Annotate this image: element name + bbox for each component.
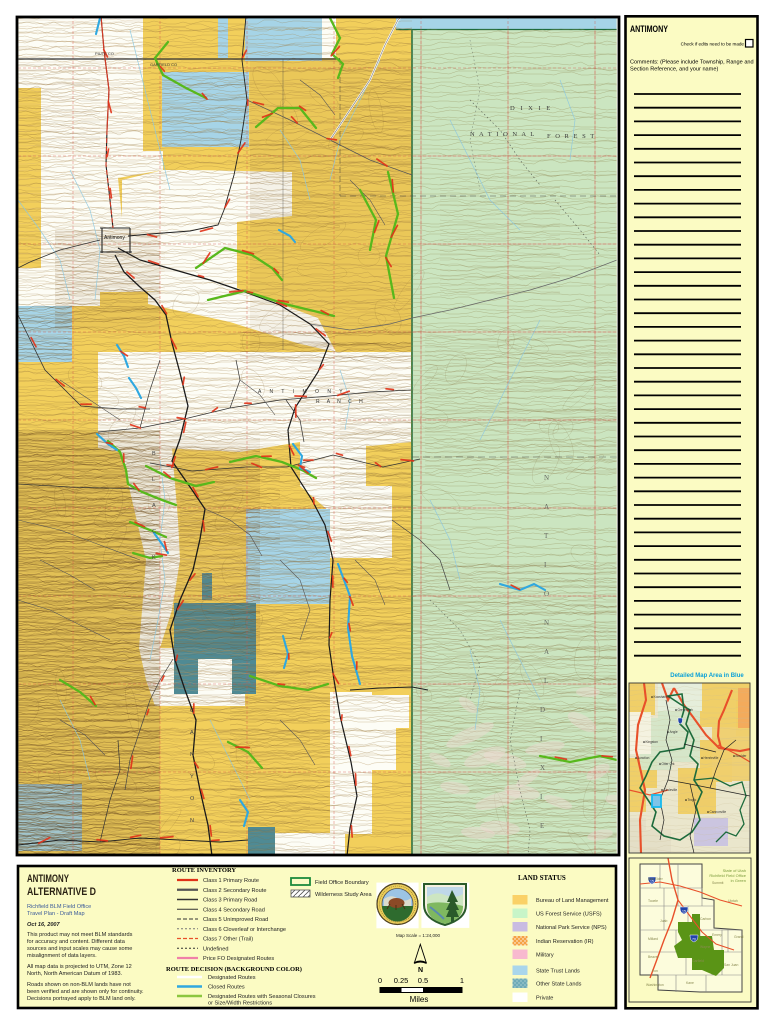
svg-text:Private: Private [536,996,553,1002]
svg-text:A N T I M O N Y: A N T I M O N Y [258,389,346,395]
svg-text:0.25: 0.25 [394,976,409,985]
svg-text:sources and input scales may c: sources and input scales may cause some [27,946,132,952]
svg-text:GARFIELD CO: GARFIELD CO [150,62,177,67]
svg-text:Cannonville: Cannonville [710,810,727,814]
svg-text:C: C [190,708,194,714]
svg-text:Designated Routes: Designated Routes [208,975,256,981]
svg-text:Section Reference, and your na: Section Reference, and your name) [630,67,718,73]
svg-text:N: N [190,752,194,758]
svg-text:Wayne: Wayne [700,945,711,949]
svg-text:C: C [152,529,156,535]
svg-text:15: 15 [682,910,686,914]
svg-text:Henrieville: Henrieville [704,756,719,760]
svg-text:Beaver: Beaver [648,955,660,959]
svg-text:San Juan: San Juan [724,963,738,967]
svg-text:Class 1 Primary Route: Class 1 Primary Route [203,878,259,884]
svg-text:Check if edits need to be made: Check if edits need to be made [681,42,745,47]
svg-text:Kane: Kane [686,981,694,985]
svg-text:A: A [544,503,549,511]
svg-text:Junction: Junction [638,756,650,760]
svg-text:ROUTE DECISION (BACKGROUND COL: ROUTE DECISION (BACKGROUND COLOR) [166,966,302,973]
svg-text:Wilderness Study Area: Wilderness Study Area [315,892,372,898]
svg-text:0.5: 0.5 [418,976,428,985]
svg-text:Travel Plan - Draft Map: Travel Plan - Draft Map [27,911,85,917]
svg-text:Bureau of Land Management: Bureau of Land Management [536,898,609,904]
svg-text:Greenwich: Greenwich [678,708,693,712]
svg-text:ANTIMONY: ANTIMONY [27,873,69,885]
svg-text:ROUTE INVENTORY: ROUTE INVENTORY [172,867,236,874]
svg-text:Field Office Boundary: Field Office Boundary [315,880,369,886]
svg-text:been verified and are shown on: been verified and are shown only for con… [27,989,144,995]
svg-text:Box Elder: Box Elder [648,877,664,881]
svg-text:Iron: Iron [652,969,658,973]
svg-text:Military: Military [536,953,554,959]
svg-text:Comments: (Please include Tow: Comments: (Please include Township, Rang… [630,60,754,66]
svg-text:N: N [544,619,549,627]
svg-text:Tropic: Tropic [688,798,697,802]
svg-text:Carbon: Carbon [700,917,711,921]
svg-text:N: N [190,818,194,824]
svg-text:70: 70 [692,938,696,942]
svg-text:Detailed Map Area in Blue: Detailed Map Area in Blue [670,673,744,679]
svg-text:Class 3 Primary Road: Class 3 Primary Road [203,898,257,904]
svg-text:State Trust Lands: State Trust Lands [536,969,580,975]
svg-text:Undefined: Undefined [203,946,229,952]
svg-text:Class 7 Other (Trail): Class 7 Other (Trail) [203,937,253,943]
svg-text:Class 2 Secondary Route: Class 2 Secondary Route [203,888,266,894]
svg-text:Kingston: Kingston [646,740,659,744]
svg-text:D: D [540,706,545,714]
svg-text:1: 1 [460,976,464,985]
svg-text:K: K [152,555,156,561]
svg-text:LAND STATUS: LAND STATUS [518,874,566,882]
svg-text:Garfield: Garfield [692,959,704,963]
svg-text:A: A [152,503,156,509]
svg-text:PIUTE CO: PIUTE CO [95,51,114,56]
svg-text:0: 0 [378,976,382,985]
svg-text:Map Scale = 1:24,000: Map Scale = 1:24,000 [396,933,440,938]
svg-text:US Forest Service (USFS): US Forest Service (USFS) [536,912,602,918]
svg-text:Antimony: Antimony [104,235,125,241]
svg-text:D I X I E: D I X I E [510,105,552,112]
svg-text:F O R E S T: F O R E S T [547,133,596,140]
svg-text:N: N [544,474,549,482]
svg-text:Miles: Miles [410,995,429,1004]
svg-text:Richfield BLM Field Office: Richfield BLM Field Office [27,904,91,910]
svg-text:Class 6 Cloverleaf or Intercha: Class 6 Cloverleaf or Interchange [203,927,286,933]
svg-text:Circleville: Circleville [664,788,678,792]
svg-text:All map data is projected to U: All map data is projected to UTM, Zone 1… [27,964,132,970]
svg-text:Millard: Millard [648,937,658,941]
svg-text:X: X [540,764,545,772]
svg-text:Angle: Angle [670,730,678,734]
svg-text:Tooele: Tooele [648,899,658,903]
svg-text:Otter Crk: Otter Crk [662,762,675,766]
svg-text:Indian Reservation (IR): Indian Reservation (IR) [536,939,594,945]
svg-text:Class 5 Unimproved Road: Class 5 Unimproved Road [203,917,268,923]
svg-text:E: E [540,822,544,830]
svg-text:Summit: Summit [712,881,724,885]
svg-text:or Size/Width Restrictions: or Size/Width Restrictions [208,1001,272,1007]
svg-text:Designated Routes with Seasona: Designated Routes with Seasonal Closures [208,994,316,1000]
svg-text:National Park Service (NPS): National Park Service (NPS) [536,925,607,931]
svg-text:L: L [152,477,155,483]
svg-text:This product may not meet BLM: This product may not meet BLM standards [27,932,133,938]
svg-text:B: B [152,451,156,457]
svg-text:Koosharem: Koosharem [654,695,671,699]
svg-text:Decisions portrayed apply to B: Decisions portrayed apply to BLM land on… [27,996,136,1002]
svg-text:North, North American Datum of: North, North American Datum of 1983. [27,971,123,977]
svg-text:Oct 16, 2007: Oct 16, 2007 [27,922,61,928]
svg-text:for accuracy and content. Diff: for accuracy and content. Different data [27,939,126,945]
svg-text:Roads shown on non-BLM lands h: Roads shown on non-BLM lands have not [27,982,131,988]
svg-text:in Green: in Green [731,878,746,883]
svg-text:Emery: Emery [712,933,722,937]
svg-text:Closed Routes: Closed Routes [208,985,245,991]
svg-text:Boulder: Boulder [736,754,748,758]
svg-text:O: O [190,796,195,802]
svg-text:R A N C H: R A N C H [316,399,366,405]
svg-text:ANTIMONY: ANTIMONY [630,24,668,35]
svg-text:O: O [544,590,549,598]
svg-text:N A T I O N A L: N A T I O N A L [470,131,536,138]
svg-text:Uintah: Uintah [728,899,738,903]
svg-text:misalignment of data layers.: misalignment of data layers. [27,953,97,959]
svg-text:Price FO Designated Routes: Price FO Designated Routes [203,956,274,962]
svg-text:ALTERNATIVE D: ALTERNATIVE D [27,886,96,898]
svg-text:Y: Y [190,774,194,780]
svg-text:Grand: Grand [734,935,744,939]
svg-text:A: A [544,648,549,656]
svg-text:Washington: Washington [646,983,664,987]
svg-text:Juab: Juab [660,919,667,923]
svg-text:N: N [418,967,423,974]
svg-text:A: A [190,730,194,736]
svg-text:Other State Lands: Other State Lands [536,982,582,988]
svg-text:Class 4 Secondary Road: Class 4 Secondary Road [203,907,265,913]
svg-text:T: T [544,532,549,540]
svg-text:L: L [544,677,548,685]
